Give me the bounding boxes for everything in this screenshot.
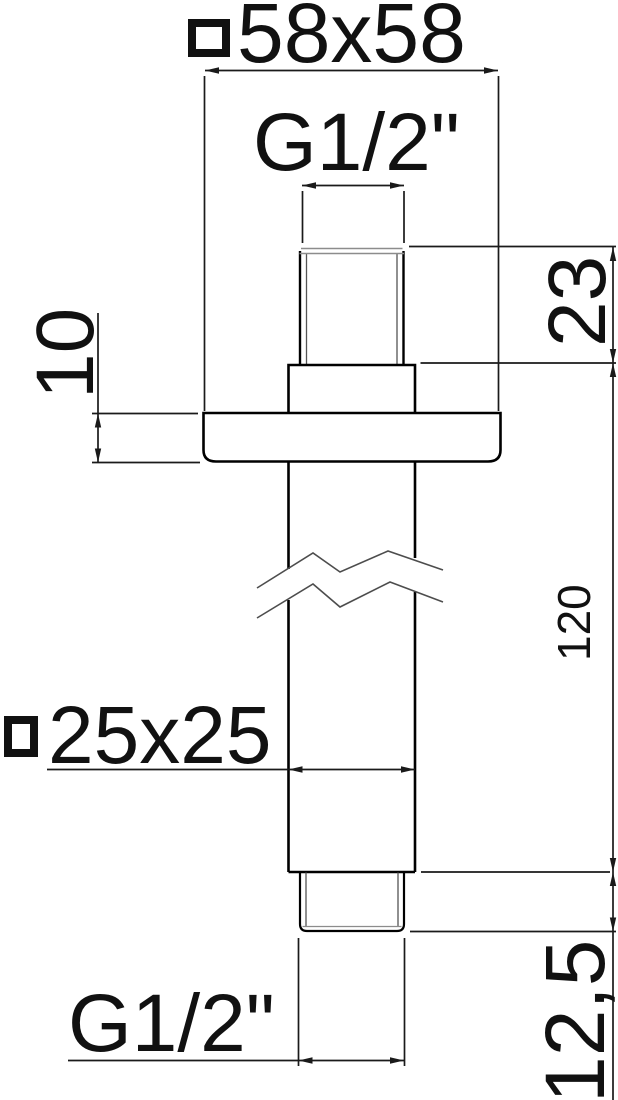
top-thread-outline bbox=[300, 249, 405, 366]
label-flange-thickness: 10 bbox=[20, 308, 111, 399]
bottom-thread-outline bbox=[300, 873, 404, 932]
label-top-thread: G1/2" bbox=[253, 97, 460, 188]
arrow-10-top bbox=[95, 414, 101, 428]
part-outline bbox=[204, 249, 501, 932]
label-tube-size: 25x25 bbox=[48, 690, 271, 781]
arrow-g12bot-right bbox=[390, 1057, 404, 1063]
label-flange-size: 58x58 bbox=[237, 0, 466, 80]
arrow-58-left bbox=[205, 67, 219, 73]
arrow-g12bot-left bbox=[299, 1057, 313, 1063]
arrow-10-bottom bbox=[95, 449, 101, 463]
bottom-thread-outer-line bbox=[300, 873, 404, 932]
square-section-icon-tube bbox=[8, 720, 34, 753]
square-section-icon-top bbox=[192, 23, 226, 53]
arrow-120-bottom bbox=[610, 858, 616, 872]
arrow-125-top bbox=[610, 872, 616, 886]
arrow-120-top bbox=[610, 363, 616, 377]
label-bottom-thread: G1/2" bbox=[68, 978, 275, 1069]
arrow-58-right bbox=[484, 67, 498, 73]
arrow-25-right bbox=[401, 766, 415, 772]
shower-arm-dimension-drawing: 58x58 G1/2" 23 10 120 25x25 G1/2" 12,5 bbox=[0, 0, 618, 1100]
label-bottom-thread-length: 12,5 bbox=[528, 940, 618, 1100]
arrow-125-bottom bbox=[610, 918, 616, 932]
dim-g12-top bbox=[302, 186, 404, 244]
technical-drawing-page: 58x58 G1/2" 23 10 120 25x25 G1/2" 12,5 bbox=[0, 0, 618, 1100]
label-top-thread-length: 23 bbox=[532, 256, 618, 347]
arrow-23-bottom bbox=[610, 349, 616, 363]
flange-outline bbox=[204, 413, 501, 462]
upper-block-outline bbox=[289, 365, 416, 413]
label-arm-length: 120 bbox=[548, 584, 600, 661]
arrow-25-left bbox=[289, 766, 303, 772]
